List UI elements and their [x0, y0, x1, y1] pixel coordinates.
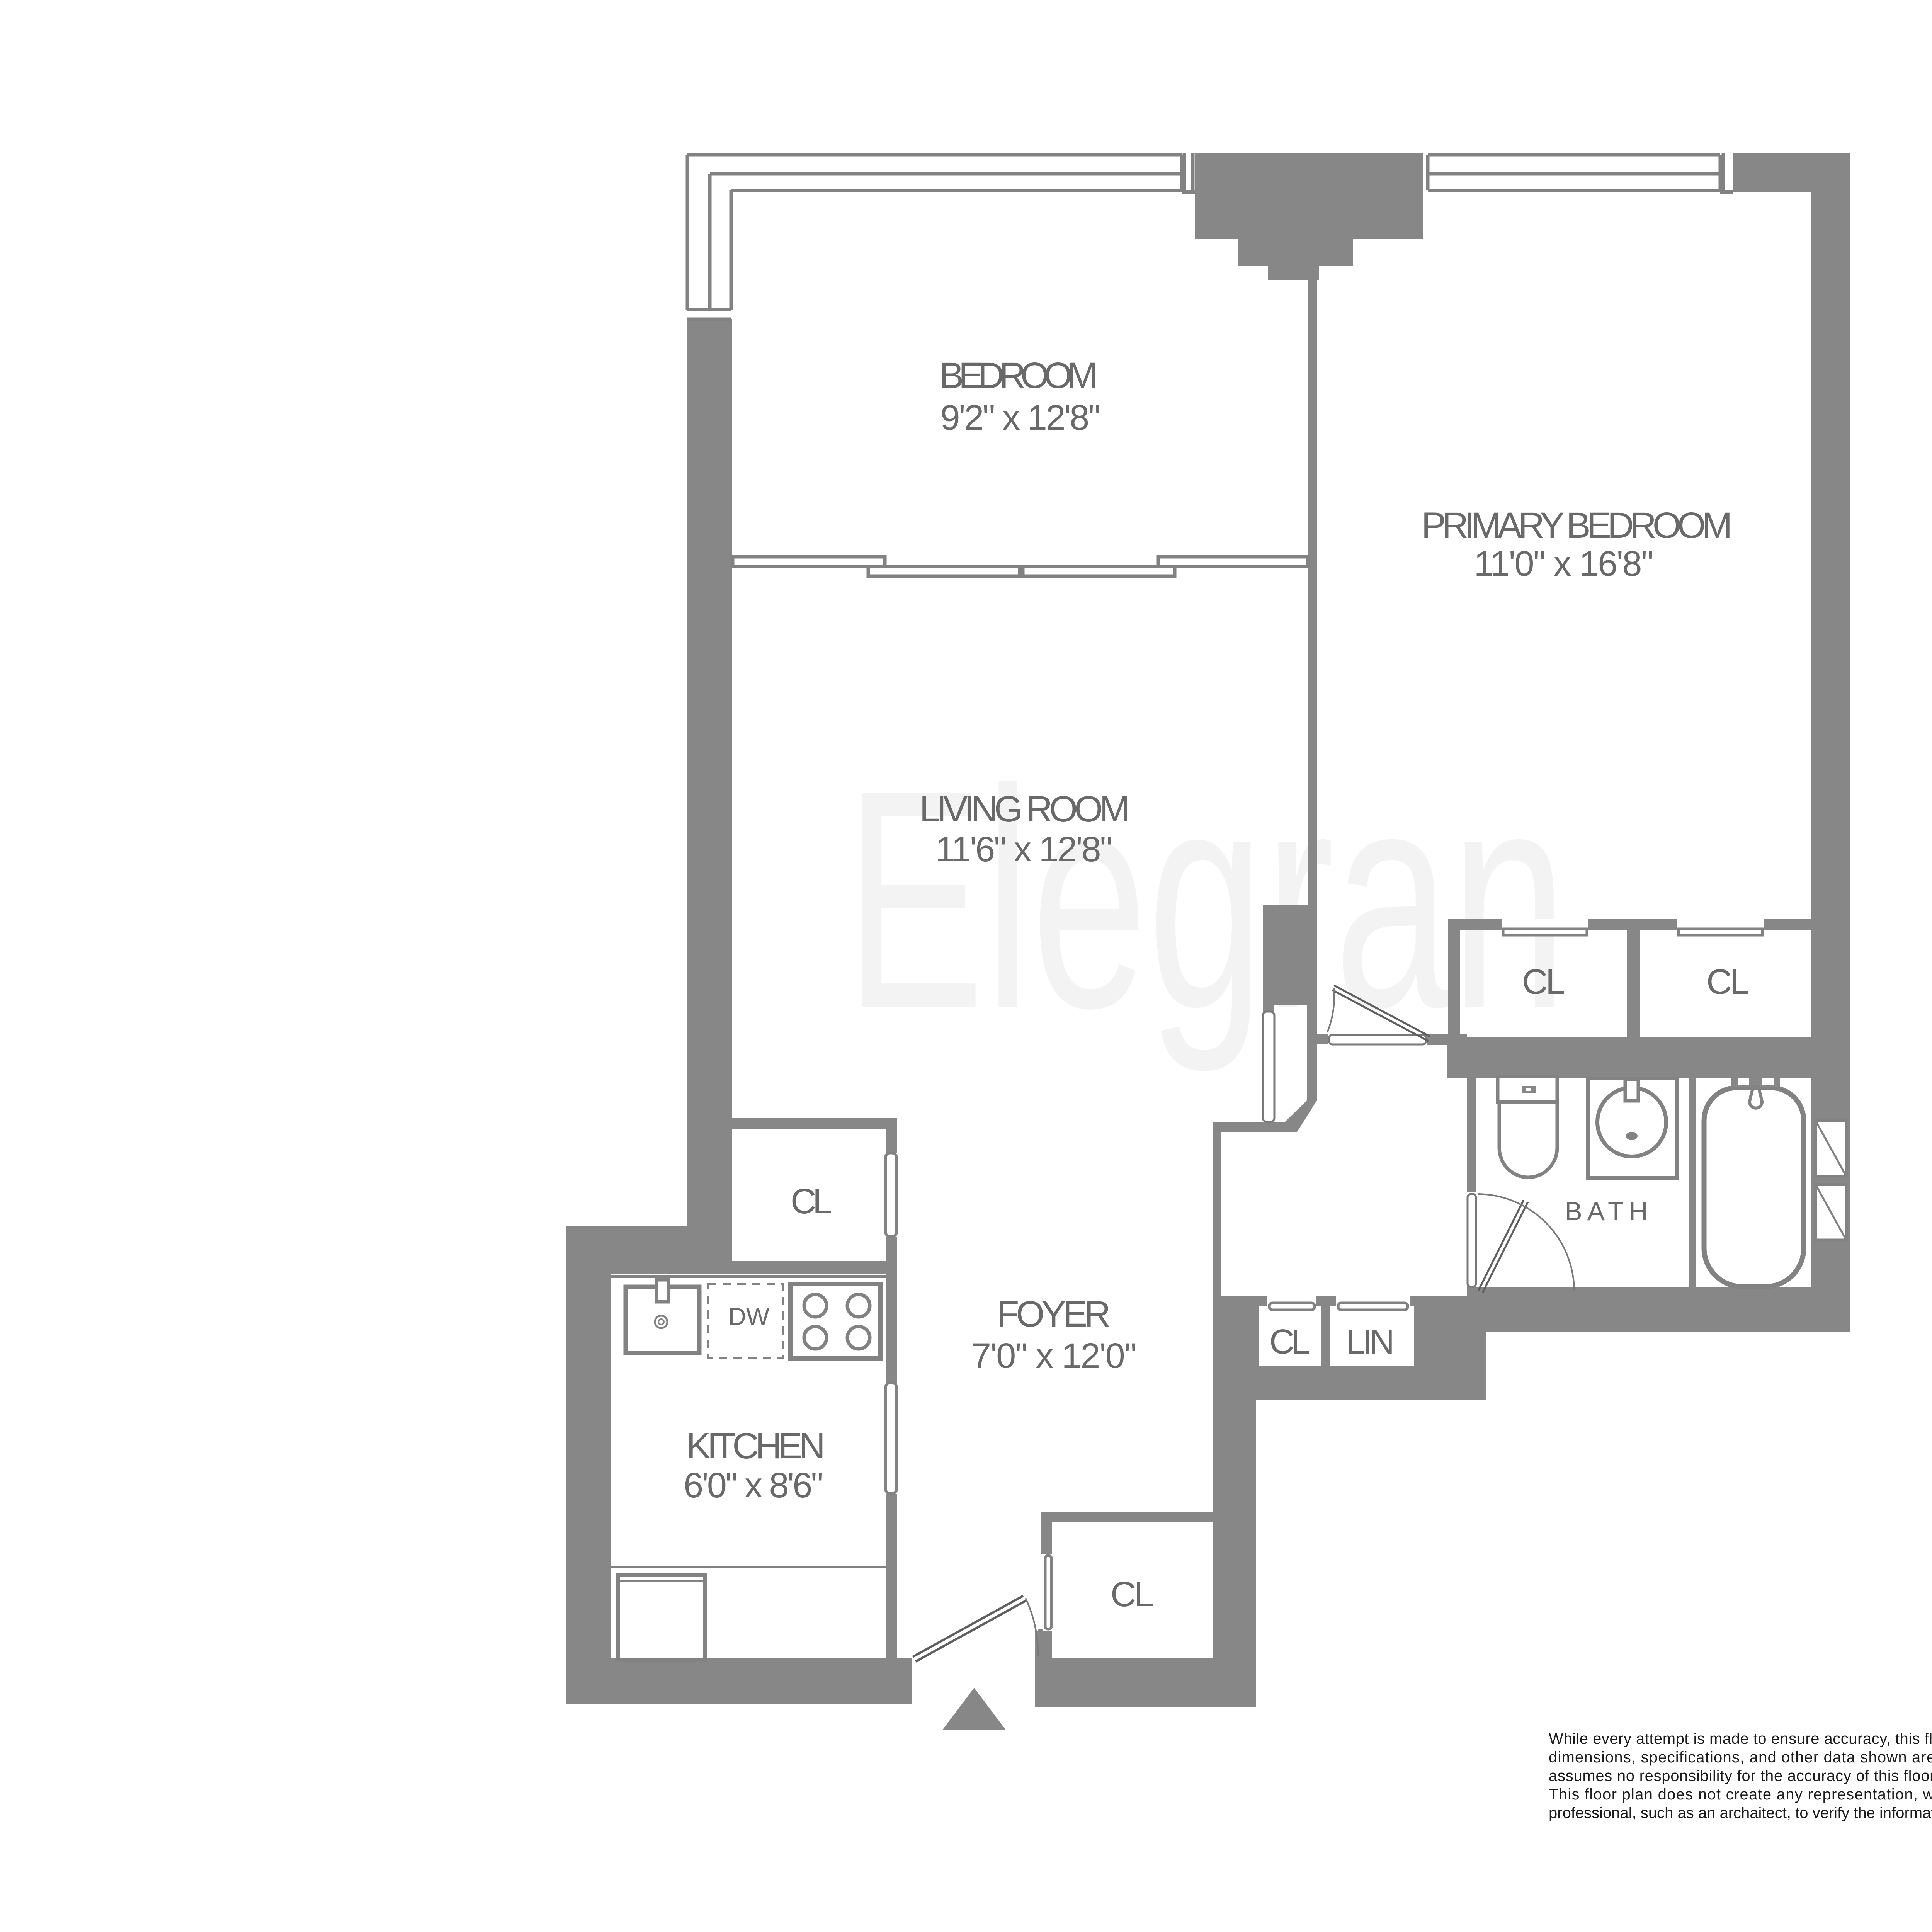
svg-text:7'0" x 12'0": 7'0" x 12'0"	[971, 1336, 1137, 1376]
svg-text:11'6" x 12'8": 11'6" x 12'8"	[935, 830, 1112, 869]
svg-text:dimensions, specifications, an: dimensions, specifications, and other da…	[1549, 1749, 1932, 1766]
svg-text:11'0" x 16'8": 11'0" x 16'8"	[1474, 544, 1654, 583]
svg-text:PRIMARY BEDROOM: PRIMARY BEDROOM	[1422, 505, 1733, 546]
svg-text:CL: CL	[1269, 1323, 1310, 1361]
svg-text:CL: CL	[1706, 962, 1750, 1002]
svg-text:CL: CL	[791, 1182, 832, 1221]
svg-text:assumes no responsibility for: assumes no responsibility for the accura…	[1549, 1767, 1932, 1784]
svg-text:LIVING ROOM: LIVING ROOM	[920, 789, 1130, 830]
svg-text:While every attempt is made to: While every attempt is made to ensure ac…	[1549, 1730, 1932, 1747]
svg-text:CL: CL	[1111, 1575, 1154, 1614]
svg-text:9'2" x 12'8": 9'2" x 12'8"	[940, 398, 1101, 437]
svg-text:FOYER: FOYER	[997, 1294, 1111, 1335]
svg-text:professional, such as an archa: professional, such as an archaitect, to …	[1549, 1804, 1932, 1821]
svg-text:DW: DW	[728, 1303, 770, 1330]
svg-text:CL: CL	[1522, 962, 1565, 1002]
svg-text:6'0" x 8'6": 6'0" x 8'6"	[684, 1466, 823, 1505]
svg-text:LIN: LIN	[1346, 1323, 1395, 1361]
svg-text:This floor plan does not creat: This floor plan does not create any repr…	[1549, 1786, 1932, 1803]
svg-text:BEDROOM: BEDROOM	[939, 355, 1098, 396]
svg-text:KITCHEN: KITCHEN	[686, 1425, 825, 1466]
